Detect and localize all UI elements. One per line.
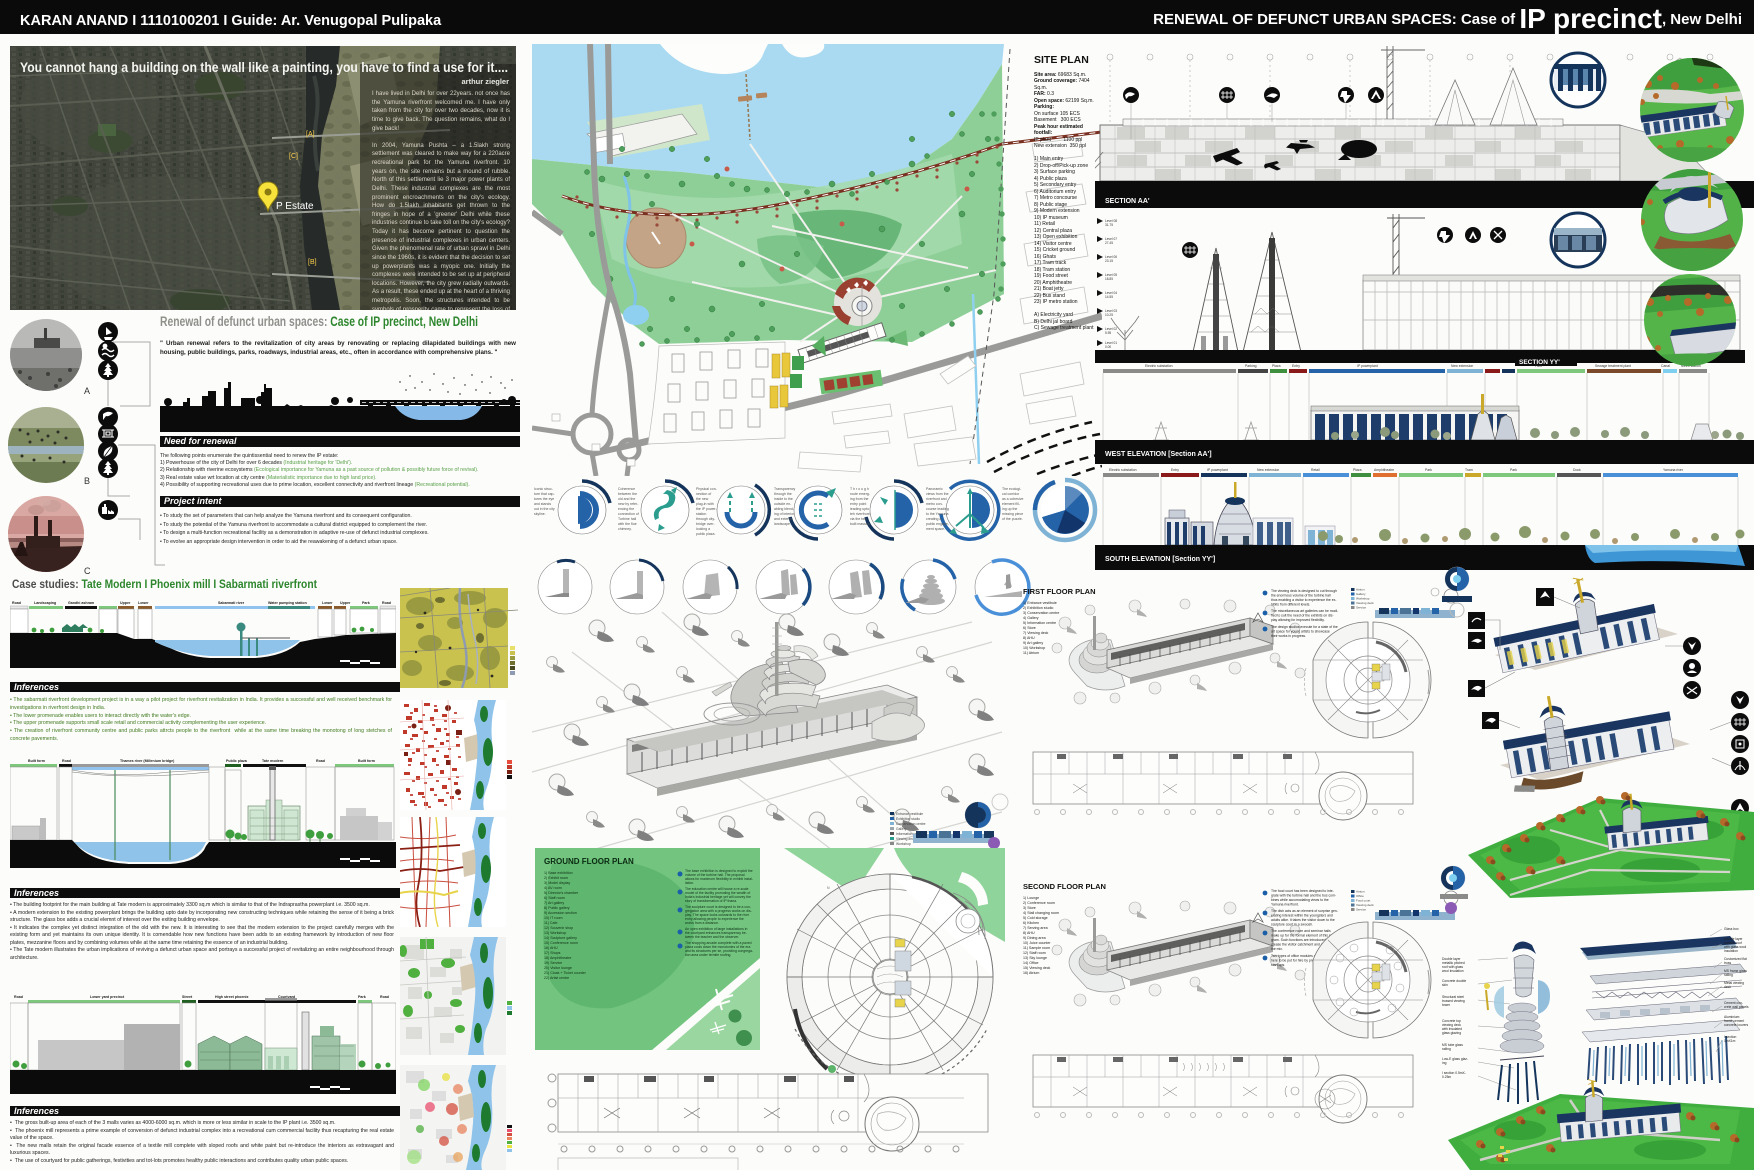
svg-text:P Estate: P Estate (276, 201, 314, 212)
svg-text:Viewing deck: Viewing deck (896, 837, 916, 841)
svg-text:9) Dining area: 9) Dining area (1023, 936, 1046, 940)
svg-text:views from the: views from the (926, 492, 949, 496)
svg-text:GROUND FLOOR PLAN: GROUND FLOOR PLAN (544, 857, 634, 866)
svg-text:old and the: old and the (618, 497, 635, 501)
svg-text:The miscellaneous art gallerie: The miscellaneous art galleries can be m… (1271, 609, 1338, 613)
svg-text:ing of interior: ing of interior (774, 512, 795, 516)
svg-text:make up for the formal element: make up for the formal element of this p… (1271, 934, 1335, 938)
svg-text:Built form: Built form (358, 759, 375, 763)
svg-text:Thames river (Millenium bridge: Thames river (Millenium bridge) (120, 759, 175, 763)
svg-text:7) Art gallery: 7) Art gallery (544, 901, 564, 905)
svg-text:skyline.: skyline. (534, 512, 546, 516)
svg-text:Turbine hall: Turbine hall (618, 517, 636, 521)
svg-text:through the: through the (774, 492, 792, 496)
svg-text:12) Staff room: 12) Staff room (1023, 951, 1046, 955)
svg-text:Coherence: Coherence (618, 487, 635, 491)
svg-text:and exterior: and exterior (774, 517, 793, 521)
svg-text:[B]: [B] (308, 259, 317, 266)
svg-text:You cannot hang a building on: You cannot hang a building on the wall l… (20, 59, 508, 75)
svg-text:Road: Road (14, 995, 23, 999)
svg-text:5) Director's chamber: 5) Director's chamber (544, 891, 579, 895)
svg-text:play allowing for improved fle: play allowing for improved flexibility. (1271, 618, 1325, 622)
svg-text:cal corridor: cal corridor (1002, 492, 1020, 496)
svg-text:between the: between the (618, 492, 637, 496)
svg-text:bridge over-: bridge over- (696, 522, 716, 526)
svg-text:Parking: Parking (1245, 364, 1257, 368)
svg-text:Electric substation: Electric substation (1145, 364, 1173, 368)
svg-text:sculpture court in a swoosh.: sculpture court in a swoosh. (1271, 923, 1313, 927)
svg-text:Amphitheatre: Amphitheatre (1374, 468, 1394, 472)
svg-text:Glass box: Glass box (1724, 927, 1739, 931)
svg-text:2) Conference room: 2) Conference room (1023, 901, 1055, 905)
svg-text:Tram: Tram (1465, 468, 1473, 472)
svg-text:tower: tower (1442, 1003, 1451, 1007)
svg-text:The dish acts as an element of: The dish acts as an element of surprise … (1271, 909, 1338, 913)
svg-text:with the flue: with the flue (618, 522, 637, 526)
svg-text:Viewing deck: Viewing deck (1356, 903, 1374, 907)
svg-text:16) Atrium: 16) Atrium (1023, 971, 1039, 975)
svg-text:WEST ELEVATION [Section AA']: WEST ELEVATION [Section AA'] (1105, 451, 1212, 458)
svg-text:6) Store: 6) Store (1023, 626, 1036, 630)
svg-text:plug-in with: plug-in with (696, 502, 714, 506)
svg-text:Exhibition studio: Exhibition studio (896, 817, 920, 821)
svg-text:Park: Park (362, 601, 370, 605)
svg-text:art space for young artists to: art space for young artists to showcase (1271, 630, 1330, 634)
svg-text:Entry: Entry (1292, 364, 1300, 368)
svg-text:14.55: 14.55 (1105, 295, 1113, 299)
svg-text:19) Service: 19) Service (544, 961, 562, 965)
svg-text:public engage-: public engage- (926, 522, 950, 526)
svg-text:Upper: Upper (120, 601, 131, 605)
svg-text:9) Art gallery: 9) Art gallery (1023, 641, 1043, 645)
svg-text:[C]: [C] (289, 153, 298, 160)
svg-text:T h r o u g h: T h r o u g h (850, 487, 869, 491)
svg-text:as a cohesive: as a cohesive (1002, 497, 1023, 501)
svg-text:Entrance vestibule: Entrance vestibule (896, 812, 923, 816)
svg-text:SECTION AA': SECTION AA' (1105, 198, 1150, 205)
svg-text:Road: Road (382, 601, 391, 605)
svg-text:Physical con-: Physical con- (696, 487, 718, 491)
svg-text:new by refer-: new by refer- (618, 502, 639, 506)
svg-text:ing: ing (1442, 1061, 1447, 1065)
svg-text:Road: Road (316, 759, 325, 763)
svg-text:8) AHU: 8) AHU (1023, 636, 1035, 640)
svg-text:start-ups.: start-ups. (1271, 963, 1285, 967)
svg-text:creating a: creating a (926, 517, 941, 521)
svg-text:concrete louvers: concrete louvers (1724, 1023, 1749, 1027)
svg-text:outside en-: outside en- (774, 502, 792, 506)
svg-text:inside to the: inside to the (774, 497, 793, 501)
svg-text:their works in progress.: their works in progress. (1271, 634, 1306, 638)
svg-text:crete wall panels: crete wall panels (1724, 1005, 1749, 1009)
svg-text:Road: Road (62, 759, 71, 763)
svg-text:FIRST FLOOR PLAN: FIRST FLOOR PLAN (1023, 587, 1096, 596)
svg-text:17) Shops: 17) Shops (544, 951, 561, 955)
svg-text:15) Viewing deck: 15) Viewing deck (1023, 966, 1051, 970)
svg-text:10) Juice counter: 10) Juice counter (1023, 941, 1051, 945)
svg-text:6) Staff room: 6) Staff room (544, 896, 565, 900)
svg-text:20) Visitor lounge: 20) Visitor lounge (544, 966, 572, 970)
svg-text:glass glazing: glass glazing (1442, 1031, 1461, 1035)
svg-text:ing up the: ing up the (1002, 507, 1017, 511)
svg-text:The viewing deck is designed t: The viewing deck is designed to cut thro… (1271, 589, 1337, 593)
svg-text:Transparency: Transparency (774, 487, 796, 491)
svg-text:through city-: through city- (696, 517, 716, 521)
svg-text:allows for maximum flexibility: allows for maximum flexibility in exhibi… (685, 877, 753, 881)
svg-text:The food court has been design: The food court has been designed to inte… (1271, 889, 1334, 893)
svg-text:15) Conference room: 15) Conference room (544, 941, 578, 945)
svg-text:landscape.: landscape. (774, 522, 791, 526)
svg-text:9) Accession section: 9) Accession section (544, 911, 577, 915)
svg-text:A: A (84, 386, 90, 396)
svg-text:element fill-: element fill- (1002, 502, 1021, 506)
svg-text:High street phoenix: High street phoenix (215, 995, 249, 999)
svg-text:21) Cloak + Ticket counter: 21) Cloak + Ticket counter (544, 971, 587, 975)
svg-text:via the two: via the two (850, 517, 867, 521)
svg-text:the mix.: the mix. (1271, 947, 1283, 951)
svg-text:leading upto: leading upto (850, 507, 869, 511)
svg-text:16) AHU: 16) AHU (544, 946, 558, 950)
svg-text:adults alike. It takes the vis: adults alike. It takes the visitor down … (1271, 918, 1335, 922)
svg-text:metro con-: metro con- (926, 502, 944, 506)
svg-text:Plaza: Plaza (1353, 468, 1362, 472)
svg-text:Iconic struc-: Iconic struc- (534, 487, 554, 491)
svg-text:Yamuna river: Yamuna river (1663, 468, 1684, 472)
svg-text:1) Entrance vestibule: 1) Entrance vestibule (1023, 601, 1057, 605)
svg-text:grate with the turbine hall an: grate with the turbine hall and the bus … (1271, 894, 1336, 898)
svg-text:Tate modern: Tate modern (262, 759, 283, 763)
svg-text:New extension: New extension (1257, 468, 1279, 472)
svg-text:13) Workshop: 13) Workshop (544, 931, 566, 935)
svg-text:tion area under termite roofin: tion area under termite roofing. (685, 953, 731, 957)
svg-text:course leading: course leading (926, 507, 949, 511)
svg-text:ture that cap-: ture that cap- (534, 492, 555, 496)
svg-text:5.95: 5.95 (1105, 331, 1111, 335)
svg-text:Food court: Food court (1356, 899, 1371, 903)
svg-text:5) Information centre: 5) Information centre (1023, 621, 1056, 625)
svg-text:18) Amphitheatre: 18) Amphitheatre (544, 956, 571, 960)
svg-text:public plaza.: public plaza. (696, 532, 715, 536)
svg-text:6) Kitchen: 6) Kitchen (1023, 921, 1039, 925)
svg-text:Atrium: Atrium (1356, 588, 1365, 592)
svg-text:3) Conservation centre: 3) Conservation centre (1023, 611, 1059, 615)
svg-text:Road: Road (380, 995, 389, 999)
svg-text:insulation: insulation (1724, 949, 1738, 953)
svg-text:entry point: entry point (850, 502, 866, 506)
svg-text:Upper: Upper (340, 601, 351, 605)
svg-text:skin: skin (1442, 983, 1448, 987)
svg-text:Workshop: Workshop (896, 842, 911, 846)
svg-text:B: B (84, 476, 90, 486)
svg-text:hibits from different levels.: hibits from different levels. (1271, 603, 1310, 607)
svg-text:13) Sky lounge: 13) Sky lounge (1023, 956, 1047, 960)
svg-text:to the Yamuna: to the Yamuna (926, 512, 948, 516)
svg-text:18.85: 18.85 (1105, 277, 1113, 281)
svg-text:bines while accomodating views: bines while accomodating views to the (1271, 898, 1329, 902)
svg-text:The ecologi-: The ecologi- (1002, 487, 1022, 491)
svg-text:of the puzzle.: of the puzzle. (1002, 517, 1023, 521)
svg-text:The conference room and semina: The conference room and seminar halls (1271, 929, 1331, 933)
svg-text:tures the eye: tures the eye (534, 497, 554, 501)
svg-text:Office: Office (1356, 894, 1364, 898)
svg-text:SOUTH ELEVATION [Section YY']: SOUTH ELEVATION [Section YY'] (1105, 556, 1215, 563)
svg-text:railing: railing (1724, 973, 1733, 977)
svg-text:the IP power-: the IP power- (696, 507, 718, 511)
svg-text:chimney.: chimney. (618, 527, 632, 531)
svg-text:12) Souvenir shop: 12) Souvenir shop (544, 926, 573, 930)
svg-text:Service: Service (1356, 606, 1366, 610)
svg-text:Lower: Lower (322, 601, 333, 605)
svg-text:14) Sculpture gallery: 14) Sculpture gallery (544, 936, 577, 940)
svg-text:tween the teacher and the obse: tween the teacher and the observer. (685, 935, 739, 939)
svg-text:Lower: Lower (138, 601, 149, 605)
svg-text:New extension: New extension (1451, 364, 1473, 368)
svg-text:SECOND FLOOR PLAN: SECOND FLOOR PLAN (1023, 882, 1106, 891)
svg-text:5) Cold storage: 5) Cold storage (1023, 916, 1048, 920)
svg-text:connection of: connection of (618, 512, 639, 516)
svg-text:Viewing deck: Viewing deck (1356, 601, 1374, 605)
svg-text:7) Viewing deck: 7) Viewing deck (1023, 631, 1049, 635)
svg-text:11) Cafe: 11) Cafe (544, 921, 558, 925)
svg-text:the enormous volume of the tur: the enormous volume of the turbine hall (1271, 594, 1331, 598)
svg-text:Sewage treatment plant: Sewage treatment plant (1595, 364, 1631, 368)
svg-text:railing: railing (1442, 1047, 1451, 1051)
svg-text:story of transformation of IP: story of transformation of IP thana. (685, 899, 737, 903)
svg-text:Gallery: Gallery (896, 827, 907, 831)
svg-text:abling blend-: abling blend- (774, 507, 795, 511)
svg-text:4) Stall changing room: 4) Stall changing room (1023, 911, 1059, 915)
svg-text:Road: Road (12, 601, 21, 605)
svg-text:Gandhi ashram: Gandhi ashram (68, 601, 94, 605)
svg-text:4) AV room: 4) AV room (544, 886, 562, 890)
svg-text:Park: Park (1510, 468, 1517, 472)
svg-text:encing the: encing the (618, 507, 634, 511)
svg-text:Park: Park (1535, 364, 1542, 368)
svg-text:1) Base exhibition: 1) Base exhibition (544, 871, 573, 875)
svg-text:11) Sample room: 11) Sample room (1023, 946, 1050, 950)
svg-text:27.45: 27.45 (1105, 241, 1113, 245)
svg-text:Yamuna riverfront.: Yamuna riverfront. (1271, 903, 1299, 907)
svg-text:10) IT room: 10) IT room (544, 916, 563, 920)
svg-text:23.15: 23.15 (1105, 259, 1113, 263)
svg-text:8) AHU: 8) AHU (1023, 931, 1035, 935)
svg-text:Entry: Entry (1171, 468, 1179, 472)
svg-text:Conservation centre: Conservation centre (896, 822, 926, 826)
svg-text:Plaza: Plaza (1272, 364, 1281, 368)
svg-text:31.75: 31.75 (1105, 223, 1113, 227)
svg-text:ing from the: ing from the (850, 497, 869, 501)
svg-text:looking a: looking a (696, 527, 710, 531)
svg-text:station: station (696, 512, 706, 516)
svg-text:Water pumping station: Water pumping station (268, 601, 307, 605)
svg-text:riverfront and: riverfront and (926, 497, 947, 501)
svg-text:lation.: lation. (685, 881, 694, 885)
svg-text:nection of: nection of (696, 492, 711, 496)
svg-text:3) Model display: 3) Model display (544, 881, 570, 885)
svg-text:erating interest within the yo: erating interest within the youngsters a… (1271, 914, 1333, 918)
svg-text:missing piece: missing piece (1002, 512, 1023, 516)
svg-text:teh riverfront: teh riverfront (850, 512, 870, 516)
svg-text:1) Lounge: 1) Lounge (1023, 896, 1039, 900)
svg-text:7) Serving area: 7) Serving area (1023, 926, 1048, 930)
svg-text:Renewal of defunct urban space: Renewal of defunct urban spaces: Case of… (160, 314, 478, 329)
svg-text:0.00: 0.00 (1105, 345, 1111, 349)
svg-text:Retail: Retail (1311, 468, 1320, 472)
svg-text:Panoramic: Panoramic (926, 487, 943, 491)
svg-text:truss: truss (1724, 961, 1731, 965)
svg-text:Dock: Dock (1573, 468, 1581, 472)
svg-text:Landscaping: Landscaping (34, 601, 56, 605)
svg-text:0.25m: 0.25m (1442, 1075, 1451, 1079)
svg-text:The design studios execute for: The design studios execute for a state o… (1271, 625, 1338, 629)
svg-text:Built form: Built form (28, 759, 45, 763)
svg-text:and stands: and stands (534, 502, 551, 506)
svg-text:out in the city: out in the city (534, 507, 555, 511)
svg-text:N: N (827, 886, 830, 890)
svg-text:route emerg-: route emerg- (850, 492, 871, 496)
svg-text:built masses.: built masses. (850, 522, 870, 526)
svg-text:wool insulation: wool insulation (1442, 969, 1464, 973)
svg-text:thus enabling a visitor to exp: thus enabling a visitor to experience th… (1271, 598, 1336, 602)
svg-text:Case studies: Tate Modern I Ph: Case studies: Tate Modern I Phoenix mill… (12, 577, 317, 591)
svg-text:IP powerplant: IP powerplant (1207, 468, 1228, 472)
svg-text:22) Artist centre: 22) Artist centre (544, 976, 569, 980)
svg-text:Atrium: Atrium (1356, 890, 1365, 894)
svg-text:8) Public gallery: 8) Public gallery (544, 906, 570, 910)
svg-text:arthur ziegler: arthur ziegler (461, 77, 509, 86)
svg-text:Workshop: Workshop (1356, 597, 1370, 601)
svg-text:ment space.: ment space. (926, 527, 945, 531)
svg-text:Sabarmati river: Sabarmati river (218, 601, 245, 605)
svg-text:fied to suit the need of the e: fied to suit the need of the exhibits on… (1271, 614, 1334, 618)
svg-text:2) Exhibition studio: 2) Exhibition studio (1023, 606, 1053, 610)
svg-text:deck: deck (1724, 985, 1731, 989)
svg-text:works from a distance.: works from a distance. (685, 921, 719, 925)
svg-text:Park: Park (1425, 468, 1432, 472)
svg-text:10.25: 10.25 (1105, 313, 1113, 317)
svg-text:2) Exhibit room: 2) Exhibit room (544, 876, 568, 880)
svg-text:1mX1m: 1mX1m (1724, 1039, 1736, 1043)
svg-text:IP powerplant: IP powerplant (1357, 364, 1378, 368)
svg-text:Street: Street (182, 995, 193, 999)
svg-text:Service: Service (1356, 908, 1366, 912)
svg-text:10) Workshop: 10) Workshop (1023, 646, 1045, 650)
svg-text:Public plaza: Public plaza (226, 759, 248, 763)
svg-text:the new: the new (696, 497, 709, 501)
svg-text:Electric substation: Electric substation (1109, 468, 1137, 472)
svg-text:[A]: [A] (306, 131, 315, 138)
svg-text:Park: Park (358, 995, 366, 999)
svg-text:Lower yard precinct: Lower yard precinct (90, 995, 125, 999)
svg-text:11) Atrium: 11) Atrium (1023, 651, 1039, 655)
svg-text:14) Office: 14) Office (1023, 961, 1039, 965)
svg-text:4) Gallery: 4) Gallery (1023, 616, 1039, 620)
svg-text:Gallery: Gallery (1356, 592, 1366, 596)
svg-text:3) Store: 3) Store (1023, 906, 1036, 910)
